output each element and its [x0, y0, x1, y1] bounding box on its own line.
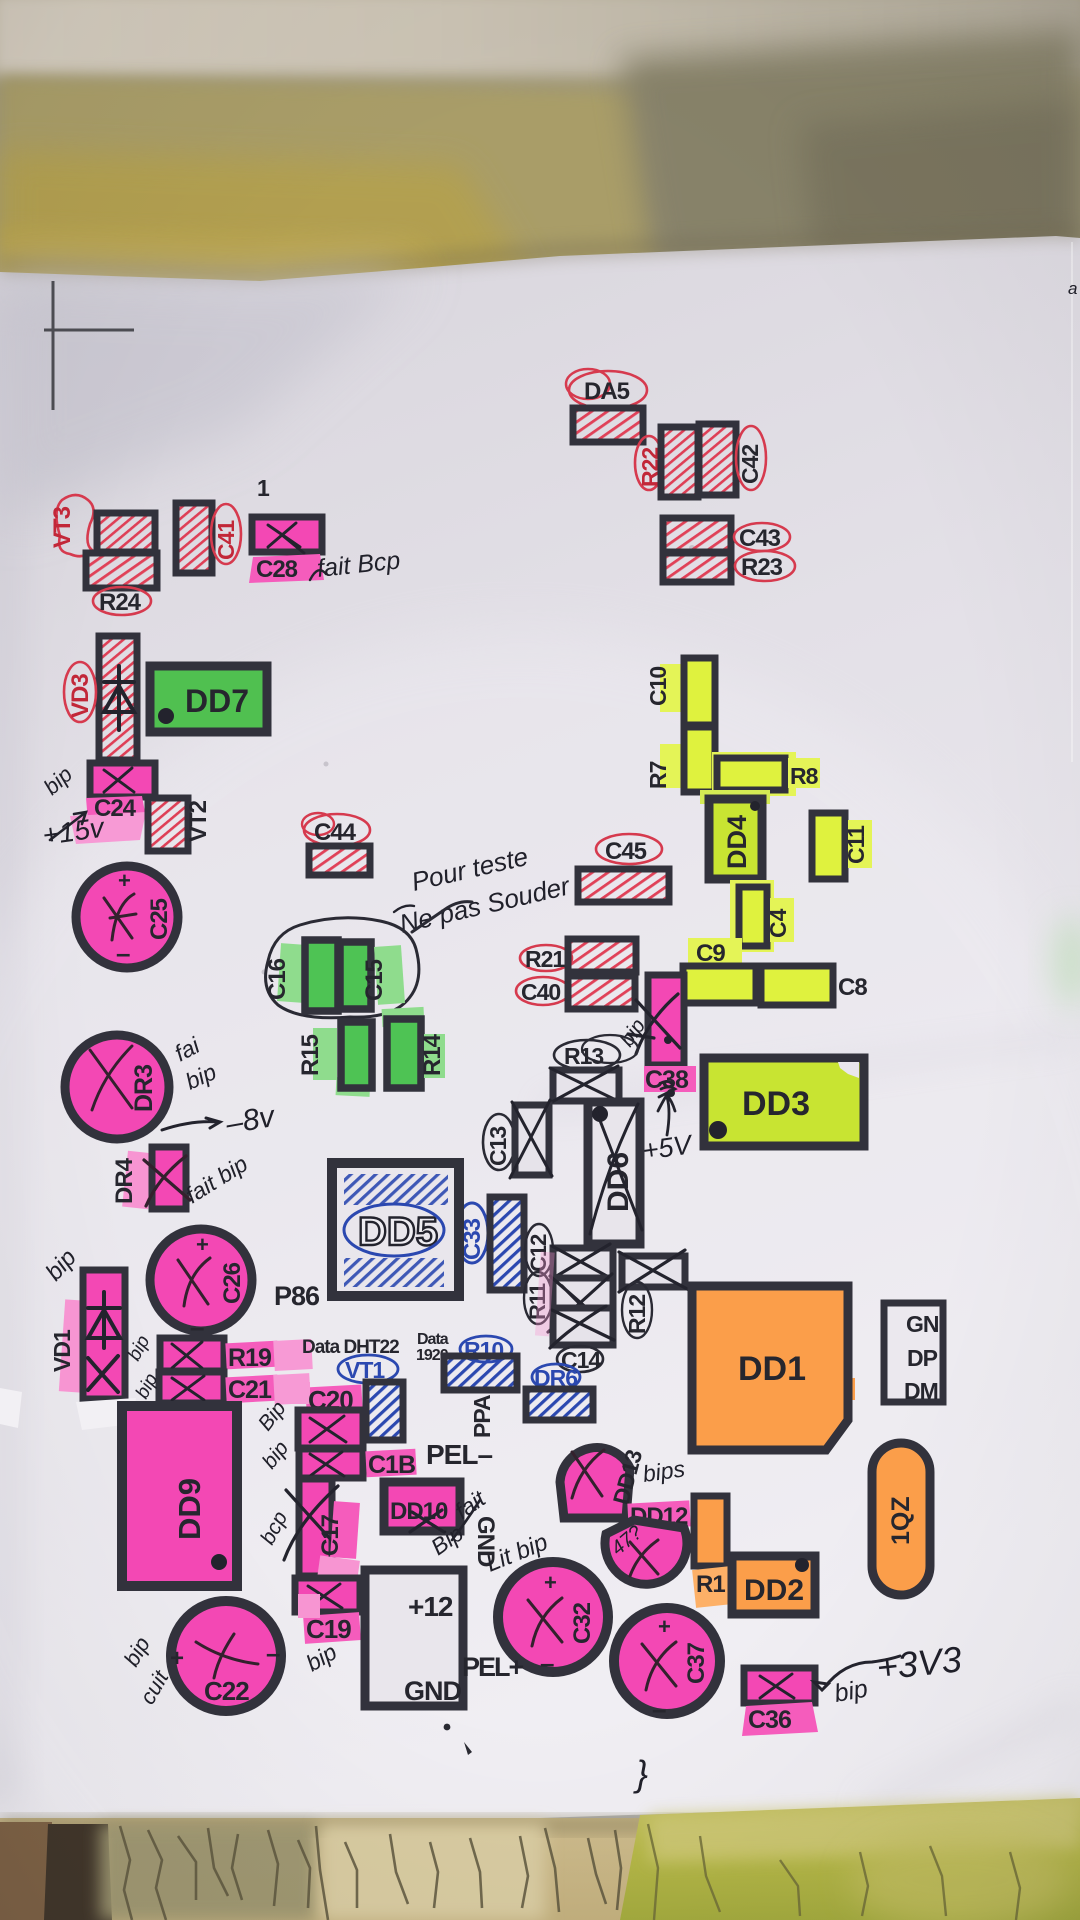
- svg-text:R23: R23: [741, 554, 783, 581]
- svg-text:C1B: C1B: [368, 1451, 415, 1479]
- svg-text:DD2: DD2: [744, 1574, 804, 1607]
- svg-text:R12: R12: [624, 1295, 650, 1334]
- svg-text:DD7: DD7: [185, 683, 249, 719]
- svg-text:1QZ: 1QZ: [887, 1496, 915, 1545]
- svg-text:Data DHT22: Data DHT22: [302, 1337, 399, 1358]
- svg-text:R8: R8: [790, 763, 819, 789]
- svg-text:PPA: PPA: [469, 1395, 495, 1438]
- svg-text:}: }: [633, 1753, 648, 1794]
- svg-text:R19: R19: [228, 1344, 271, 1372]
- svg-text:C26: C26: [219, 1262, 246, 1304]
- svg-text:R24: R24: [99, 589, 142, 616]
- svg-text:DD5: DD5: [358, 1210, 438, 1254]
- svg-text:C15: C15: [361, 959, 388, 1001]
- svg-text:+: +: [196, 1232, 209, 1257]
- svg-text:C45: C45: [605, 838, 647, 865]
- svg-text:C16: C16: [264, 958, 291, 1000]
- svg-text:DP: DP: [907, 1345, 938, 1371]
- svg-text:C41: C41: [213, 520, 239, 560]
- svg-text:C11: C11: [843, 825, 869, 864]
- svg-text:C42: C42: [737, 445, 763, 484]
- svg-text:VT3: VT3: [49, 506, 76, 548]
- svg-text:GN: GN: [906, 1311, 939, 1337]
- svg-text:VD3: VD3: [67, 674, 94, 718]
- svg-text:R15: R15: [297, 1034, 324, 1076]
- svg-text:+: +: [658, 1614, 671, 1639]
- svg-text:PEL–: PEL–: [426, 1439, 492, 1470]
- svg-text:C37: C37: [683, 1642, 710, 1684]
- svg-text:–: –: [116, 938, 130, 968]
- svg-text:C40: C40: [521, 979, 560, 1005]
- svg-text:C36: C36: [748, 1706, 791, 1734]
- svg-text:GND: GND: [404, 1676, 462, 1706]
- svg-text:R13: R13: [564, 1043, 603, 1069]
- svg-text:C28: C28: [256, 556, 298, 583]
- svg-text:VD1: VD1: [49, 1329, 75, 1372]
- svg-text:Data: Data: [417, 1331, 449, 1348]
- svg-text:C44: C44: [314, 819, 357, 846]
- svg-text:DR3: DR3: [130, 1065, 158, 1112]
- svg-text:R1: R1: [696, 1571, 725, 1598]
- svg-text:–: –: [652, 1694, 666, 1724]
- svg-text:R7: R7: [645, 761, 671, 789]
- svg-text:R14: R14: [419, 1033, 446, 1076]
- svg-text:C43: C43: [739, 525, 781, 552]
- svg-text:C17: C17: [317, 1514, 344, 1556]
- svg-text:DD1: DD1: [738, 1350, 806, 1388]
- svg-text:+: +: [118, 868, 131, 893]
- svg-text:bip: bip: [832, 1675, 870, 1708]
- svg-text:+: +: [170, 1645, 184, 1672]
- svg-text:C25: C25: [146, 898, 173, 940]
- svg-text:C32: C32: [569, 1602, 596, 1644]
- svg-text:P86: P86: [274, 1281, 320, 1311]
- svg-text:DA5: DA5: [584, 378, 630, 405]
- svg-text:–: –: [266, 1638, 280, 1668]
- svg-text:DM: DM: [904, 1378, 938, 1404]
- svg-text:DD9: DD9: [172, 1478, 207, 1540]
- svg-text:+12: +12: [408, 1591, 453, 1622]
- svg-text:+: +: [544, 1570, 557, 1595]
- svg-text:DD4: DD4: [722, 815, 752, 869]
- svg-text:R21: R21: [525, 946, 565, 972]
- svg-text:–: –: [540, 1648, 554, 1678]
- svg-text:C4: C4: [765, 908, 791, 938]
- svg-text:C10: C10: [645, 667, 671, 706]
- svg-text:C13: C13: [485, 1127, 511, 1166]
- svg-text:C21: C21: [228, 1376, 272, 1404]
- svg-text:C22: C22: [204, 1676, 249, 1706]
- svg-text:VT2: VT2: [185, 800, 212, 842]
- svg-text:DD3: DD3: [742, 1085, 810, 1123]
- svg-text:1: 1: [257, 475, 270, 501]
- svg-text:PEL+: PEL+: [462, 1652, 524, 1682]
- svg-text:DR4: DR4: [111, 1157, 138, 1204]
- svg-text:C8: C8: [838, 974, 867, 1001]
